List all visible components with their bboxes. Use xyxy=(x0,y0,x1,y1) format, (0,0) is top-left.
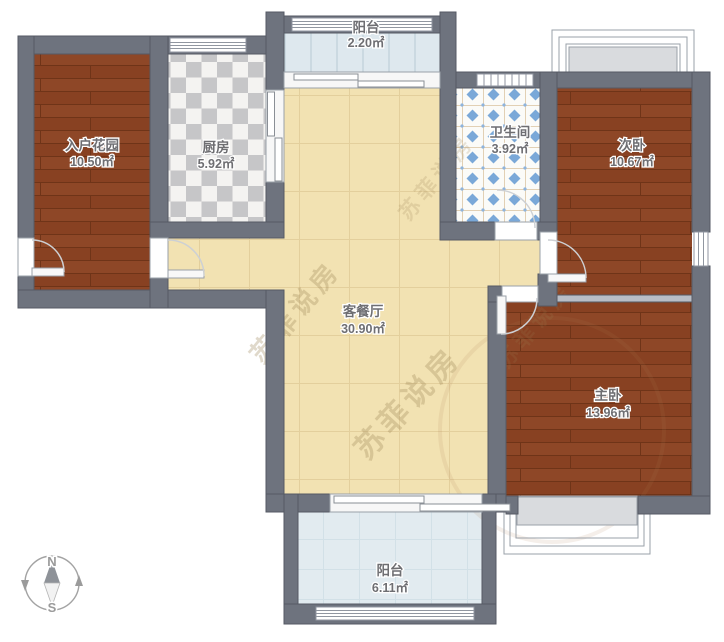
bedroom-second-floor xyxy=(557,88,692,296)
room-label-name: 入户花园 xyxy=(65,137,119,153)
wall-partition-bedrooms xyxy=(557,295,692,302)
wall-segment xyxy=(284,494,298,610)
room-label-name: 阳台 xyxy=(353,19,380,35)
room-label-area: 10.67㎡ xyxy=(610,154,654,169)
wall-segment xyxy=(150,222,284,238)
wall-segment xyxy=(150,278,168,308)
room-label-area: 5.92㎡ xyxy=(198,156,235,171)
living-hallway-right xyxy=(440,240,540,286)
wall-segment xyxy=(638,496,710,514)
entry-garden-floor xyxy=(34,54,150,290)
kitchen-floor xyxy=(168,54,266,222)
room-label-name: 卫生间 xyxy=(490,124,531,140)
room-label-area: 2.20㎡ xyxy=(348,35,385,50)
living-hallway-left xyxy=(168,238,284,290)
bay-window-bedroom-master xyxy=(504,496,650,554)
floorplan-canvas: 苏菲说房 苏菲说房 苏菲说房 苏菲说房 xyxy=(0,0,724,642)
wall-segment xyxy=(150,36,168,238)
room-label-area: 30.90㎡ xyxy=(341,321,385,336)
room-label-area: 6.11㎡ xyxy=(372,580,409,595)
kitchen-sliding-door xyxy=(266,90,284,182)
room-label-name: 客餐厅 xyxy=(342,303,384,319)
balcony-bottom-railing xyxy=(316,607,474,620)
compass-north-label: N xyxy=(47,554,56,569)
wall-segment xyxy=(440,222,495,240)
bedroom-second-window xyxy=(694,232,708,266)
compass-arrow-right-icon xyxy=(75,575,83,586)
kitchen-window xyxy=(170,38,246,52)
room-label-name: 厨房 xyxy=(203,139,230,155)
bathroom-window xyxy=(477,74,533,86)
room-label-area: 3.92㎡ xyxy=(492,141,529,156)
compass-arrow-left-icon xyxy=(21,580,29,591)
wall-segment xyxy=(266,290,284,512)
wall-segment xyxy=(18,36,168,54)
room-label-name: 次卧 xyxy=(619,137,647,153)
wall-segment xyxy=(540,72,557,232)
wall-segment xyxy=(692,72,710,232)
wall-segment xyxy=(440,12,456,240)
compass: N S xyxy=(21,554,83,615)
room-label-name: 主卧 xyxy=(595,387,623,403)
balcony-top-sliding-door xyxy=(284,72,440,88)
wall-segment xyxy=(692,266,710,512)
floorplan-svg: 苏菲说房 苏菲说房 苏菲说房 苏菲说房 xyxy=(0,0,724,642)
wall-segment xyxy=(18,36,34,240)
room-label-name: 阳台 xyxy=(377,562,404,578)
room-label-area: 10.50㎡ xyxy=(70,154,114,169)
compass-south-label: S xyxy=(48,600,57,615)
wall-segment xyxy=(266,12,284,90)
room-label-area: 13.96㎡ xyxy=(586,405,630,420)
